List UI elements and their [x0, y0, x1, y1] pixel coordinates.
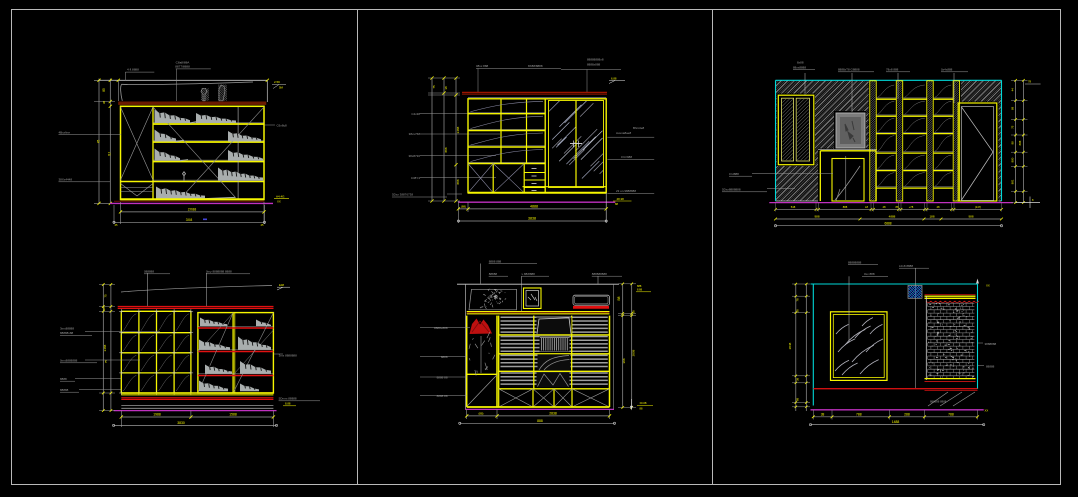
svg-text:8.88: 8.88 — [637, 288, 643, 292]
svg-text:C8a8/88A: C8a8/88A — [176, 60, 191, 64]
svg-text:C6x8y8: C6x8y8 — [277, 123, 288, 127]
svg-text:38x8736: 38x8736 — [408, 154, 420, 158]
svg-text:3mx88888: 3mx88888 — [60, 326, 74, 330]
svg-text:38xx768: 38xx768 — [409, 132, 421, 136]
svg-text:88888: 88888 — [489, 272, 498, 276]
svg-text:8888 888: 8888 888 — [489, 259, 502, 263]
svg-text:38: 38 — [102, 101, 106, 105]
svg-text:78x8 888: 78x8 888 — [886, 68, 899, 72]
svg-text:38Xx4448: 38Xx4448 — [59, 178, 73, 182]
svg-text:L 88/8888: L 88/8888 — [522, 272, 536, 276]
svg-text:+78: +78 — [909, 205, 914, 209]
svg-text:0 br/988: 0 br/988 — [621, 155, 632, 159]
svg-text:2.5K: 2.5K — [274, 80, 280, 84]
svg-text:8.88: 8.88 — [285, 402, 291, 406]
svg-text:(147): (147) — [975, 205, 981, 209]
svg-text:2848: 2848 — [788, 342, 792, 349]
svg-text:C4x38: C4x38 — [411, 112, 420, 116]
svg-text:88888888x8: 88888888x8 — [587, 58, 604, 62]
svg-text:388: 388 — [622, 358, 626, 363]
svg-text:3X8: 3X8 — [186, 218, 192, 222]
svg-text:088888: 088888 — [144, 270, 154, 274]
svg-text:88: 88 — [796, 398, 800, 402]
svg-text:3830: 3830 — [177, 421, 185, 425]
svg-text:75: 75 — [1010, 125, 1014, 129]
svg-text:2488: 2488 — [456, 126, 460, 133]
svg-text:48: 48 — [883, 205, 886, 209]
svg-text:88: 88 — [1010, 141, 1014, 145]
svg-text:88: 88 — [615, 202, 618, 206]
svg-text:2808: 2808 — [632, 349, 636, 356]
svg-text:38: 38 — [796, 378, 800, 382]
svg-text:23 un.9888888: 23 un.9888888 — [616, 189, 636, 193]
svg-text:888: 888 — [537, 419, 543, 423]
svg-text:Bhn/de8: Bhn/de8 — [633, 126, 645, 130]
svg-text:2488: 2488 — [103, 344, 107, 351]
svg-text:48.38: 48.38 — [617, 197, 625, 201]
svg-text:±0.08: ±0.08 — [640, 401, 647, 405]
svg-text:8888xT8 G8888: 8888xT8 G8888 — [838, 68, 860, 72]
svg-text:5Dmm 88888: 5Dmm 88888 — [279, 397, 297, 401]
svg-text:38: 38 — [102, 307, 106, 311]
svg-text:(88): (88) — [461, 204, 466, 208]
svg-text:Avena8ae8: Avena8ae8 — [616, 131, 631, 135]
svg-text:888: 888 — [1018, 140, 1022, 145]
svg-text:38: 38 — [796, 309, 800, 313]
svg-text:45: 45 — [96, 140, 100, 144]
svg-text:288: 288 — [904, 412, 910, 416]
svg-text:788: 788 — [856, 412, 862, 416]
svg-text:0xx 888: 0xx 888 — [864, 272, 875, 276]
svg-text:88: 88 — [896, 205, 899, 209]
svg-text:548: 548 — [791, 205, 796, 209]
svg-text:(88): (88) — [479, 412, 484, 416]
svg-text:4 fl.8888: 4 fl.8888 — [127, 68, 139, 72]
svg-text:3838: 3838 — [528, 217, 536, 221]
svg-text:1588: 1588 — [229, 413, 237, 417]
svg-text:1488: 1488 — [892, 420, 900, 424]
svg-text:XX: XX — [986, 284, 990, 288]
svg-text:5Dxx8888888: 5Dxx8888888 — [722, 188, 741, 192]
svg-text:75: 75 — [104, 294, 108, 298]
svg-text:5M: 5M — [279, 85, 284, 89]
svg-text:C38Y4: C38Y4 — [411, 176, 421, 180]
svg-text:88888: 88888 — [986, 365, 995, 369]
svg-text:8888x888: 8888x888 — [587, 63, 601, 67]
svg-text:4888: 4888 — [889, 215, 896, 219]
svg-text:4Bxxfine: 4Bxxfine — [59, 130, 71, 134]
svg-text:2X88: 2X88 — [188, 208, 196, 212]
svg-text:48: 48 — [937, 205, 940, 209]
svg-text:888: 888 — [843, 205, 848, 209]
svg-text:B8: B8 — [617, 296, 621, 300]
svg-text:0my 8888888 8888: 0my 8888888 8888 — [206, 270, 232, 274]
svg-text:88888x88: 88888x88 — [60, 331, 74, 335]
svg-text:1988: 1988 — [153, 413, 161, 417]
svg-text:881: 881 — [1010, 179, 1014, 184]
svg-text:8x88: 8x88 — [797, 61, 804, 65]
svg-text:08xx 888: 08xx 888 — [476, 64, 489, 68]
svg-text:75: 75 — [432, 85, 436, 89]
svg-text:85: 85 — [102, 88, 106, 92]
svg-text:988: 988 — [814, 215, 819, 219]
svg-text:78: 78 — [796, 298, 800, 302]
svg-text:8J: 8J — [108, 152, 112, 156]
svg-text:888888888: 888888888 — [592, 272, 607, 276]
svg-text:88888888: 88888888 — [848, 260, 862, 264]
svg-text:2838: 2838 — [549, 412, 557, 416]
svg-text:38: 38 — [632, 310, 636, 314]
svg-text:A4.4G: A4.4G — [276, 194, 285, 198]
svg-text:XX: XX — [985, 409, 989, 413]
svg-text:78: 78 — [1028, 80, 1032, 84]
svg-text:38: 38 — [821, 412, 825, 416]
svg-text:888888 8888: 888888 8888 — [930, 399, 947, 403]
svg-text:888: 888 — [444, 147, 448, 152]
svg-text:880: 880 — [1010, 157, 1014, 162]
svg-text:4888: 4888 — [530, 204, 538, 208]
svg-text:XX: XX — [277, 199, 281, 203]
svg-text:3mx 8888888: 3mx 8888888 — [279, 354, 298, 358]
svg-text:6.88: 6.88 — [611, 76, 617, 80]
svg-text:8877/8888: 8877/8888 — [175, 65, 190, 69]
svg-text:88: 88 — [1010, 106, 1014, 110]
svg-text:44: 44 — [1010, 88, 1014, 92]
svg-text:88xx8888: 88xx8888 — [793, 65, 806, 69]
svg-text:788: 788 — [948, 412, 954, 416]
svg-text:888: 888 — [637, 284, 642, 288]
svg-text:88888: 88888 — [60, 388, 69, 392]
svg-text:0mx8888888: 0mx8888888 — [60, 359, 78, 363]
svg-text:E48: E48 — [279, 283, 284, 287]
svg-text:L0v8 8888: L0v8 8888 — [899, 264, 913, 268]
svg-text:38: 38 — [444, 86, 448, 90]
svg-text:5Dxx 38876738: 5Dxx 38876738 — [392, 193, 413, 197]
svg-text:188: 188 — [929, 215, 934, 219]
svg-text:6888: 6888 — [884, 221, 891, 225]
svg-text:8X88/8888: 8X88/8888 — [528, 64, 543, 68]
svg-text:8888 88: 8888 88 — [437, 394, 448, 398]
svg-text:L8: L8 — [865, 205, 868, 209]
svg-text:888: 888 — [456, 179, 460, 184]
svg-text:3888888: 3888888 — [985, 342, 997, 346]
svg-text:8888: 8888 — [441, 355, 448, 359]
svg-text:8888: 8888 — [60, 377, 67, 381]
svg-text:8888 88: 8888 88 — [437, 376, 448, 380]
svg-text:988: 988 — [968, 215, 973, 219]
svg-text:0x4x888: 0x4x888 — [941, 68, 953, 72]
svg-text:8888+888: 8888+888 — [434, 326, 448, 330]
svg-text:0 ld888: 0 ld888 — [729, 172, 739, 176]
